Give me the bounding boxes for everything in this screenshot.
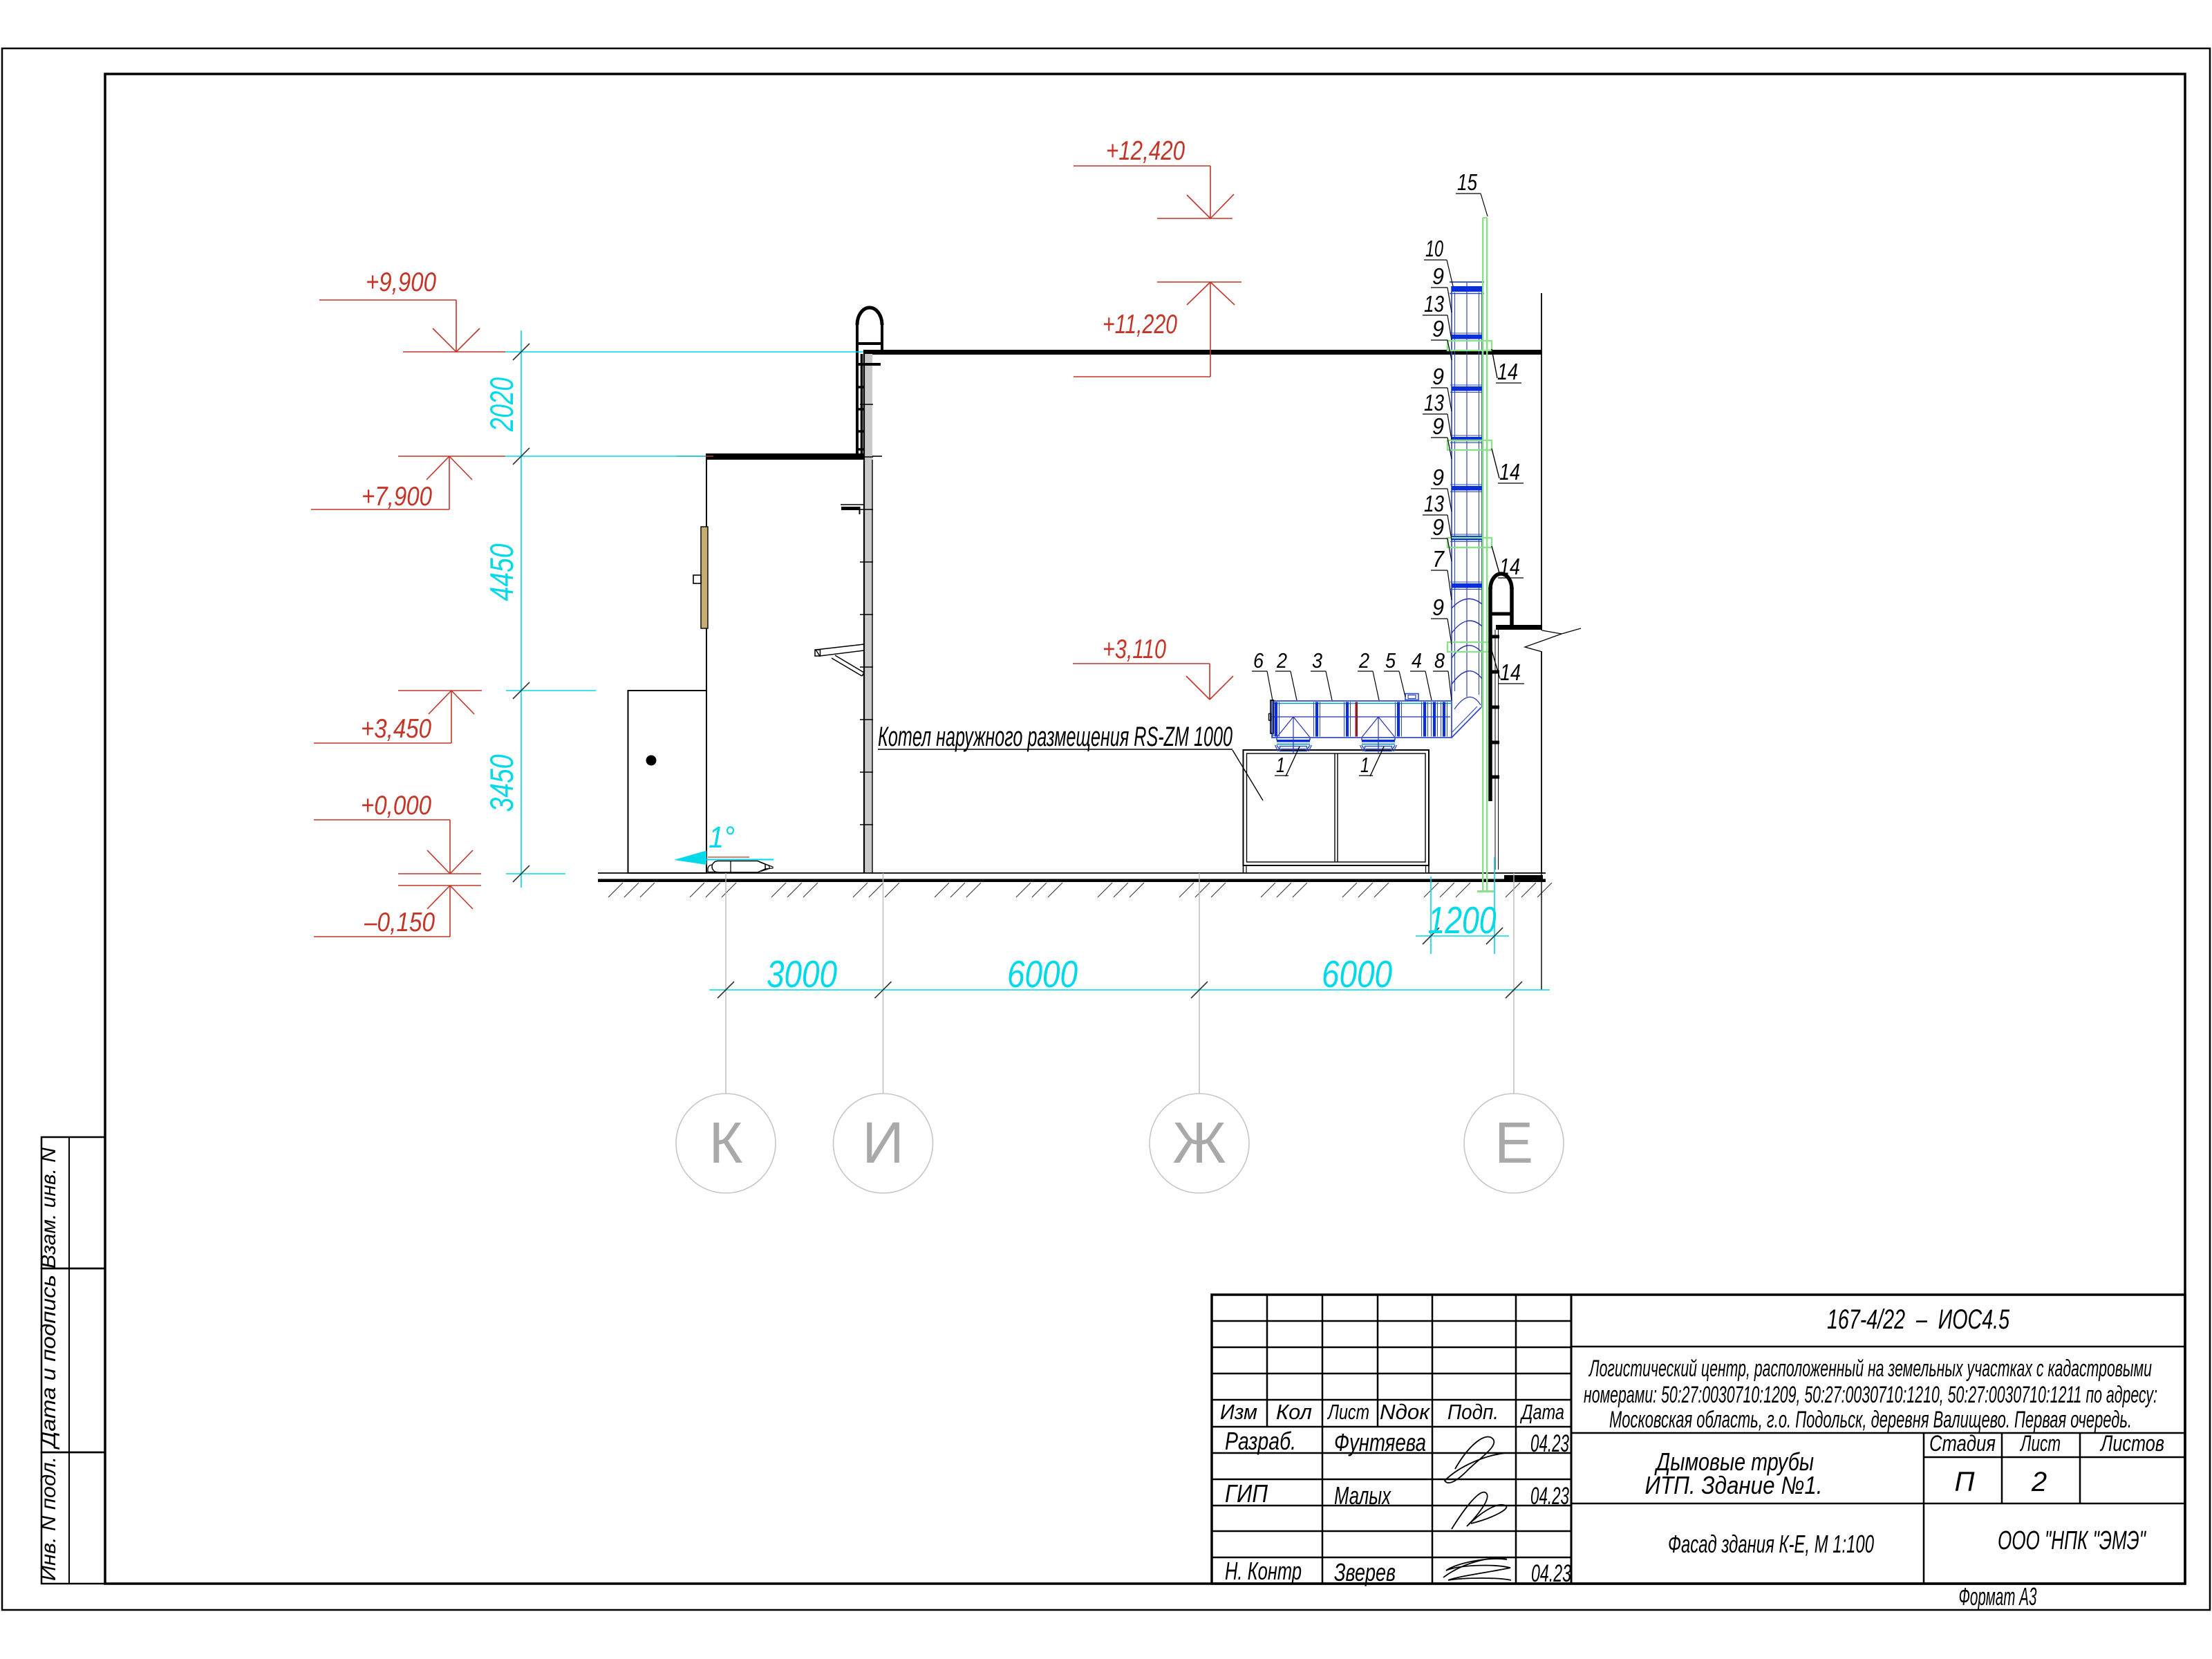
svg-text:2: 2 <box>1276 648 1287 673</box>
svg-text:Дата и подпись: Дата и подпись <box>37 1275 60 1450</box>
svg-text:9: 9 <box>1432 465 1444 490</box>
svg-text:6000: 6000 <box>1322 953 1392 995</box>
svg-text:04.23: 04.23 <box>1530 1430 1569 1457</box>
svg-text:+12,420: +12,420 <box>1106 136 1185 166</box>
svg-text:–0,150: –0,150 <box>364 908 435 937</box>
svg-text:13: 13 <box>1424 390 1445 415</box>
svg-text:3450: 3450 <box>483 755 520 812</box>
svg-text:04.23: 04.23 <box>1530 1483 1569 1510</box>
svg-text:9: 9 <box>1432 316 1444 341</box>
svg-text:1: 1 <box>1360 753 1369 777</box>
svg-text:13: 13 <box>1424 491 1445 516</box>
svg-text:Листов: Листов <box>2099 1431 2164 1456</box>
svg-text:Зверев: Зверев <box>1334 1558 1396 1586</box>
svg-text:Московская область, г.о. Подол: Московская область, г.о. Подольск, дерев… <box>1609 1407 2132 1433</box>
svg-text:3: 3 <box>1312 648 1322 673</box>
svg-text:К: К <box>709 1110 743 1175</box>
svg-text:Малых: Малых <box>1334 1481 1391 1510</box>
svg-text:7: 7 <box>1432 546 1445 572</box>
svg-text:П: П <box>1955 1467 1976 1497</box>
svg-text:9: 9 <box>1432 364 1444 389</box>
svg-text:ООО "НПК "ЭМЭ": ООО "НПК "ЭМЭ" <box>1998 1526 2146 1555</box>
svg-text:Ж: Ж <box>1172 1110 1226 1175</box>
svg-text:Подп.: Подп. <box>1447 1400 1499 1424</box>
svg-text:Дата: Дата <box>1520 1400 1564 1424</box>
svg-text:167-4/22 – ИОС4.5: 167-4/22 – ИОС4.5 <box>1827 1304 2010 1335</box>
svg-text:2: 2 <box>2031 1467 2047 1497</box>
svg-text:10: 10 <box>1425 236 1443 261</box>
svg-text:14: 14 <box>1497 359 1518 384</box>
svg-text:Котел наружного размещения RS-: Котел наружного размещения RS-ZM 1000 <box>878 722 1232 752</box>
svg-text:Фунтяева: Фунтяева <box>1334 1428 1426 1456</box>
svg-text:Инв. N подл.: Инв. N подл. <box>37 1456 60 1581</box>
svg-text:15: 15 <box>1457 169 1478 195</box>
svg-text:1°: 1° <box>709 821 735 854</box>
svg-text:Е: Е <box>1494 1110 1533 1175</box>
svg-text:2: 2 <box>1358 648 1369 673</box>
svg-text:Стадия: Стадия <box>1929 1431 1996 1456</box>
svg-text:1200: 1200 <box>1428 899 1497 941</box>
svg-text:3000: 3000 <box>767 953 837 995</box>
svg-text:6000: 6000 <box>1007 953 1078 995</box>
svg-text:13: 13 <box>1424 291 1445 317</box>
svg-text:4450: 4450 <box>483 544 520 601</box>
svg-text:9: 9 <box>1432 263 1444 289</box>
svg-text:ИТП. Здание №1.: ИТП. Здание №1. <box>1645 1471 1823 1499</box>
svg-text:Кол: Кол <box>1276 1400 1312 1424</box>
svg-text:6: 6 <box>1253 648 1264 673</box>
svg-text:Nдок: Nдок <box>1380 1400 1430 1424</box>
svg-text:1: 1 <box>1276 753 1285 777</box>
svg-text:4: 4 <box>1412 648 1422 673</box>
svg-text:5: 5 <box>1385 648 1396 673</box>
svg-text:+9,900: +9,900 <box>366 268 436 297</box>
svg-text:+3,110: +3,110 <box>1103 635 1166 664</box>
svg-text:14: 14 <box>1499 459 1520 485</box>
svg-text:9: 9 <box>1432 413 1444 439</box>
svg-text:+7,900: +7,900 <box>362 482 432 512</box>
svg-text:Разраб.: Разраб. <box>1225 1427 1296 1455</box>
svg-text:Фасад здания К-Е, М 1:100: Фасад здания К-Е, М 1:100 <box>1668 1530 1874 1558</box>
svg-text:номерами: 50:27:0030710:1209,: номерами: 50:27:0030710:1209, 50:27:0030… <box>1584 1382 2157 1408</box>
svg-text:14: 14 <box>1499 554 1520 579</box>
svg-text:9: 9 <box>1432 514 1444 540</box>
svg-text:Взам. инв. N: Взам. инв. N <box>37 1147 60 1268</box>
svg-text:+0,000: +0,000 <box>361 791 431 821</box>
svg-text:Логистический центр, расположе: Логистический центр, расположенный на зе… <box>1588 1356 2152 1382</box>
svg-text:ГИП: ГИП <box>1225 1479 1268 1508</box>
svg-text:Н. Контр: Н. Контр <box>1225 1557 1302 1585</box>
svg-text:04.23: 04.23 <box>1531 1560 1571 1587</box>
svg-text:+3,450: +3,450 <box>361 714 431 744</box>
svg-text:И: И <box>862 1110 903 1175</box>
svg-text:Лист: Лист <box>2020 1431 2061 1456</box>
svg-text:9: 9 <box>1432 594 1444 620</box>
svg-text:Формат А3: Формат А3 <box>1959 1582 2037 1611</box>
svg-text:2020: 2020 <box>483 377 520 432</box>
svg-text:+11,220: +11,220 <box>1103 310 1177 339</box>
svg-text:8: 8 <box>1434 648 1445 673</box>
svg-text:Лист: Лист <box>1327 1400 1369 1424</box>
svg-text:Изм: Изм <box>1220 1400 1257 1424</box>
svg-text:14: 14 <box>1500 659 1521 685</box>
